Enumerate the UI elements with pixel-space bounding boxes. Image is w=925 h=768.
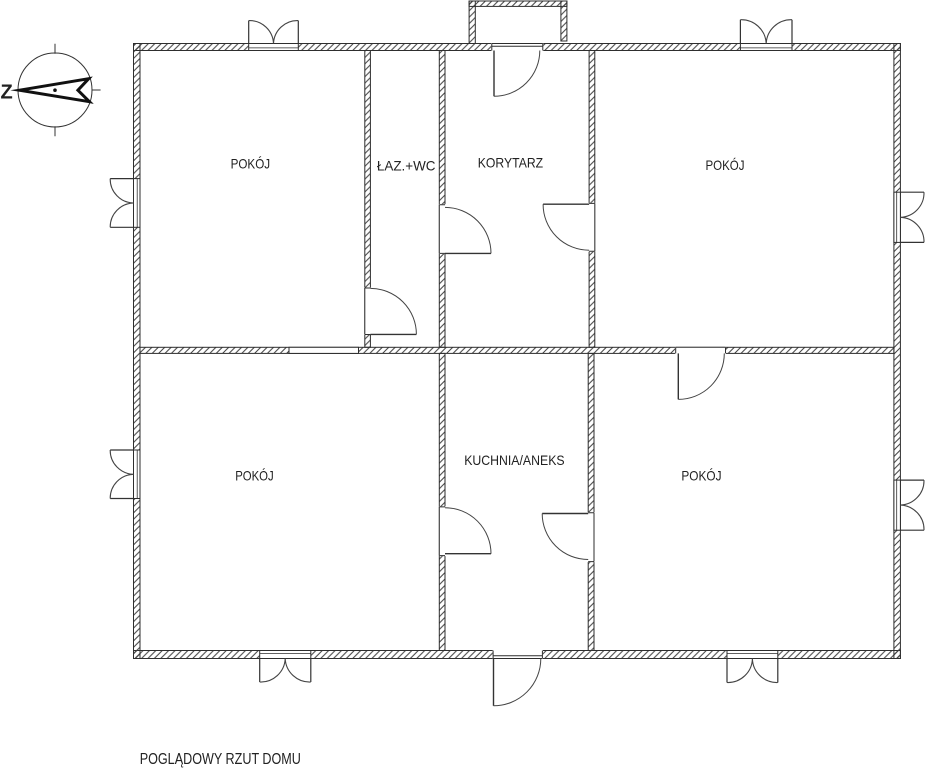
- svg-text:POKÓJ: POKÓJ: [706, 157, 745, 173]
- svg-text:KORYTARZ: KORYTARZ: [478, 155, 544, 171]
- svg-text:POKÓJ: POKÓJ: [231, 155, 271, 171]
- svg-text:POKÓJ: POKÓJ: [235, 468, 274, 484]
- svg-text:ŁAZ.+WC: ŁAZ.+WC: [377, 158, 436, 174]
- svg-text:Z: Z: [1, 82, 13, 104]
- svg-text:KUCHNIA/ANEKS: KUCHNIA/ANEKS: [464, 452, 564, 468]
- svg-text:POKÓJ: POKÓJ: [681, 467, 721, 483]
- svg-text:POGLĄDOWY RZUT DOMU: POGLĄDOWY RZUT DOMU: [140, 751, 301, 768]
